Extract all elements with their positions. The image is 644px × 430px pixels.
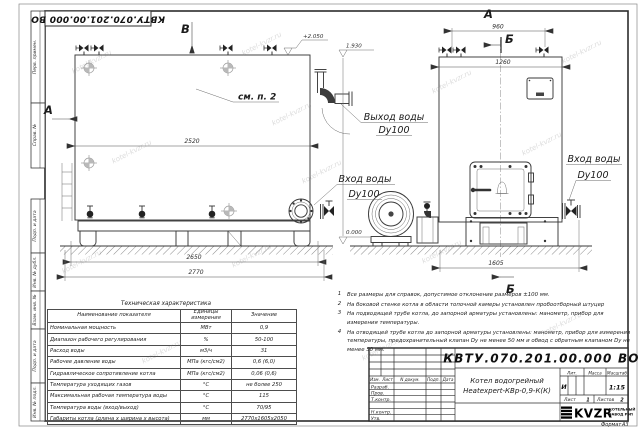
format-label: Формат xyxy=(601,422,622,428)
list-item: 1Все размеры для справок, допустимое отк… xyxy=(332,291,632,300)
table-row: Рабочее давление водыМПа (кгс/см2)0,6 (6… xyxy=(48,357,297,368)
top-stamp: КВТУ.070.201.00.000 ВО xyxy=(31,11,165,26)
sheets-value: 2 xyxy=(620,397,624,403)
row-name: Температура воды (вход/выход) xyxy=(48,402,181,413)
row-name: Рабочее давление воды xyxy=(48,357,181,368)
row-unit: °С xyxy=(181,391,232,402)
row-name: Расход воды xyxy=(48,345,181,356)
table-row: Гидравлическое сопротивление котлаМПа (к… xyxy=(48,368,297,379)
callout-inlet-side-line2: Dy100 xyxy=(577,170,608,181)
drawing-sheet: Перв. примен. Справ. № Подп. и дата Инв.… xyxy=(0,0,644,430)
logo-sub2: ЗАВОД РЭП xyxy=(609,413,633,417)
dim-960: 960 xyxy=(492,24,504,31)
table-row: Максимальная рабочая температура воды°С1… xyxy=(48,391,297,402)
rev-header-podp: Подп. xyxy=(427,377,440,382)
dim-2520: 2520 xyxy=(184,138,199,145)
rev-header-izm: Изм. xyxy=(370,377,380,382)
elevation-ground-value: 0.000 xyxy=(346,230,362,236)
tech-header-value: Значение xyxy=(232,310,297,323)
lit-label: Лит. xyxy=(566,370,577,375)
dim-2650: 2650 xyxy=(186,254,201,261)
note-number: 2 xyxy=(332,301,347,310)
dim-1260: 1260 xyxy=(495,59,510,66)
view-label-a-left: А xyxy=(43,103,53,117)
view-label-b-top: В xyxy=(181,22,190,36)
sheet-value: 1 xyxy=(586,397,589,403)
row-unit: °С xyxy=(181,379,232,390)
callout-inlet-front-line1: Вход воды xyxy=(338,174,392,185)
row-name: Номинальная мощность xyxy=(48,322,181,333)
margin-cell-inv-dubl: Инв. № дубл. xyxy=(32,256,38,287)
ground-hatch xyxy=(350,247,592,255)
list-item: 3На подводящей трубе котла, до запорной … xyxy=(332,310,632,327)
margin-cell-perv-primen: Перв. примен. xyxy=(32,40,38,75)
logo-sub1: КОТЕЛЬНЫЙ xyxy=(609,407,635,412)
callout-inlet-side-line1: Вход воды xyxy=(567,154,621,165)
note-text: На боковой стенке котла в области топочн… xyxy=(347,301,632,310)
row-value: не более 250 xyxy=(232,379,297,390)
row-unit: МПа (кгс/см2) xyxy=(181,357,232,368)
scale-label: Масштаб xyxy=(607,370,627,375)
tech-characteristics: Техническая характеристика Наименование … xyxy=(47,301,285,425)
format-value: А3 xyxy=(621,422,629,428)
rev-row-tkontr: Т.контр. xyxy=(371,397,391,403)
rev-header-data: Дата xyxy=(442,377,454,382)
margin-cell-podp-data-1: Подп. и дата xyxy=(32,210,38,241)
table-row: Температура уходящих газов°Сне более 250 xyxy=(48,379,297,390)
see-note-label: см. п. 2 xyxy=(238,93,276,103)
rev-row-prov: Пров. xyxy=(371,391,384,397)
rev-row-utv: Утв. xyxy=(371,416,381,422)
margin-cell-podp-data-2: Подп. и дата xyxy=(32,340,38,371)
note-text: Все размеры для справок, допустимое откл… xyxy=(347,291,632,300)
table-row: Температура воды (вход/выход)°С70/95 xyxy=(48,402,297,413)
callout-inlet-front-line2: Dy100 xyxy=(348,189,379,200)
product-name-line1: Котел водогрейный xyxy=(470,377,544,385)
section-label-top: Б xyxy=(505,32,514,46)
tech-header-row: Наименование показателя Единицы измерени… xyxy=(48,310,297,323)
note-number: 1 xyxy=(332,291,347,300)
row-name: Гидравлическое сопротивление котла xyxy=(48,368,181,379)
row-value: 2770х1605х2050 xyxy=(232,414,297,425)
note-number: 3 xyxy=(332,310,347,327)
mass-label: Масса xyxy=(588,370,602,375)
rev-header-ndokum: N докум. xyxy=(400,377,419,382)
row-value: 50-100 xyxy=(232,334,297,345)
callout-outlet-line1: Выход воды xyxy=(364,112,425,123)
lit-value: И xyxy=(561,383,567,391)
row-name: Температура уходящих газов xyxy=(48,379,181,390)
stand-valve-icon xyxy=(424,203,430,209)
top-stamp-text: КВТУ.070.201.00.000 ВО xyxy=(31,14,165,24)
dim-2770: 2770 xyxy=(188,269,203,276)
table-row: Габариты котла (длина х ширина х высота)… xyxy=(48,414,297,425)
row-value: 115 xyxy=(232,391,297,402)
sheets-label: Листов xyxy=(596,397,614,403)
sheet-label: Лист xyxy=(563,397,576,403)
margin-cell-sprav-no: Справ. № xyxy=(32,124,38,147)
logo-text: KVZR xyxy=(574,407,613,421)
row-name: Габариты котла (длина х ширина х высота) xyxy=(48,414,181,425)
rev-row-razrab: Разраб. xyxy=(371,384,389,390)
row-name: Диапазон рабочего регулирования xyxy=(48,334,181,345)
tech-header-name: Наименование показателя xyxy=(48,310,181,323)
row-unit: МВт xyxy=(181,322,232,333)
note-text: На отводящей трубе котла до запорной арм… xyxy=(347,329,632,355)
row-unit: МПа (кгс/см2) xyxy=(181,368,232,379)
row-unit: % xyxy=(181,334,232,345)
margin-cell-vzam-inv: Взам. инв. № xyxy=(32,294,38,325)
row-unit: °С xyxy=(181,402,232,413)
row-value: 70/95 xyxy=(232,402,297,413)
title-block: КВТУ.070.201.00.000 ВО Котел водогрейный… xyxy=(369,348,640,428)
row-value: 0,06 (0,6) xyxy=(232,368,297,379)
scale-value: 1:15 xyxy=(609,384,626,392)
rev-row-nkontr: Н.контр. xyxy=(371,410,392,416)
view-label-a-top: А xyxy=(483,7,493,21)
row-unit: м3/ч xyxy=(181,345,232,356)
row-name: Максимальная рабочая температура воды xyxy=(48,391,181,402)
table-row: Расход водым3/ч31 xyxy=(48,345,297,356)
tech-header-unit: Единицы измерения xyxy=(181,310,232,323)
row-value: 0,9 xyxy=(232,322,297,333)
elevation-top-value: +2.050 xyxy=(303,34,324,40)
elevation-outlet-value: 1.930 xyxy=(346,44,362,50)
tech-table-title: Техническая характеристика xyxy=(47,301,285,307)
row-unit: мм xyxy=(181,414,232,425)
margin-cell-inv-podl: Инв. № подл. xyxy=(32,386,38,418)
list-item: 4На отводящей трубе котла до запорной ар… xyxy=(332,329,632,355)
row-value: 31 xyxy=(232,345,297,356)
note-text: На подводящей трубе котла, до запорной а… xyxy=(347,310,632,327)
rev-header-list: Лист xyxy=(381,377,393,382)
list-item: 2На боковой стенке котла в области топоч… xyxy=(332,301,632,310)
product-name-line2: Heatexpert-КВр-0,9-К(К) xyxy=(463,387,551,395)
table-row: Диапазон рабочего регулирования%50-100 xyxy=(48,334,297,345)
notes-list: 1Все размеры для справок, допустимое отк… xyxy=(332,291,632,355)
table-row: Номинальная мощностьМВт0,9 xyxy=(48,322,297,333)
dim-1605: 1605 xyxy=(488,260,503,267)
callout-outlet-line2: Dy100 xyxy=(378,125,409,136)
tech-table: Наименование показателя Единицы измерени… xyxy=(47,309,297,425)
note-number: 4 xyxy=(332,329,347,355)
row-value: 0,6 (6,0) xyxy=(232,357,297,368)
